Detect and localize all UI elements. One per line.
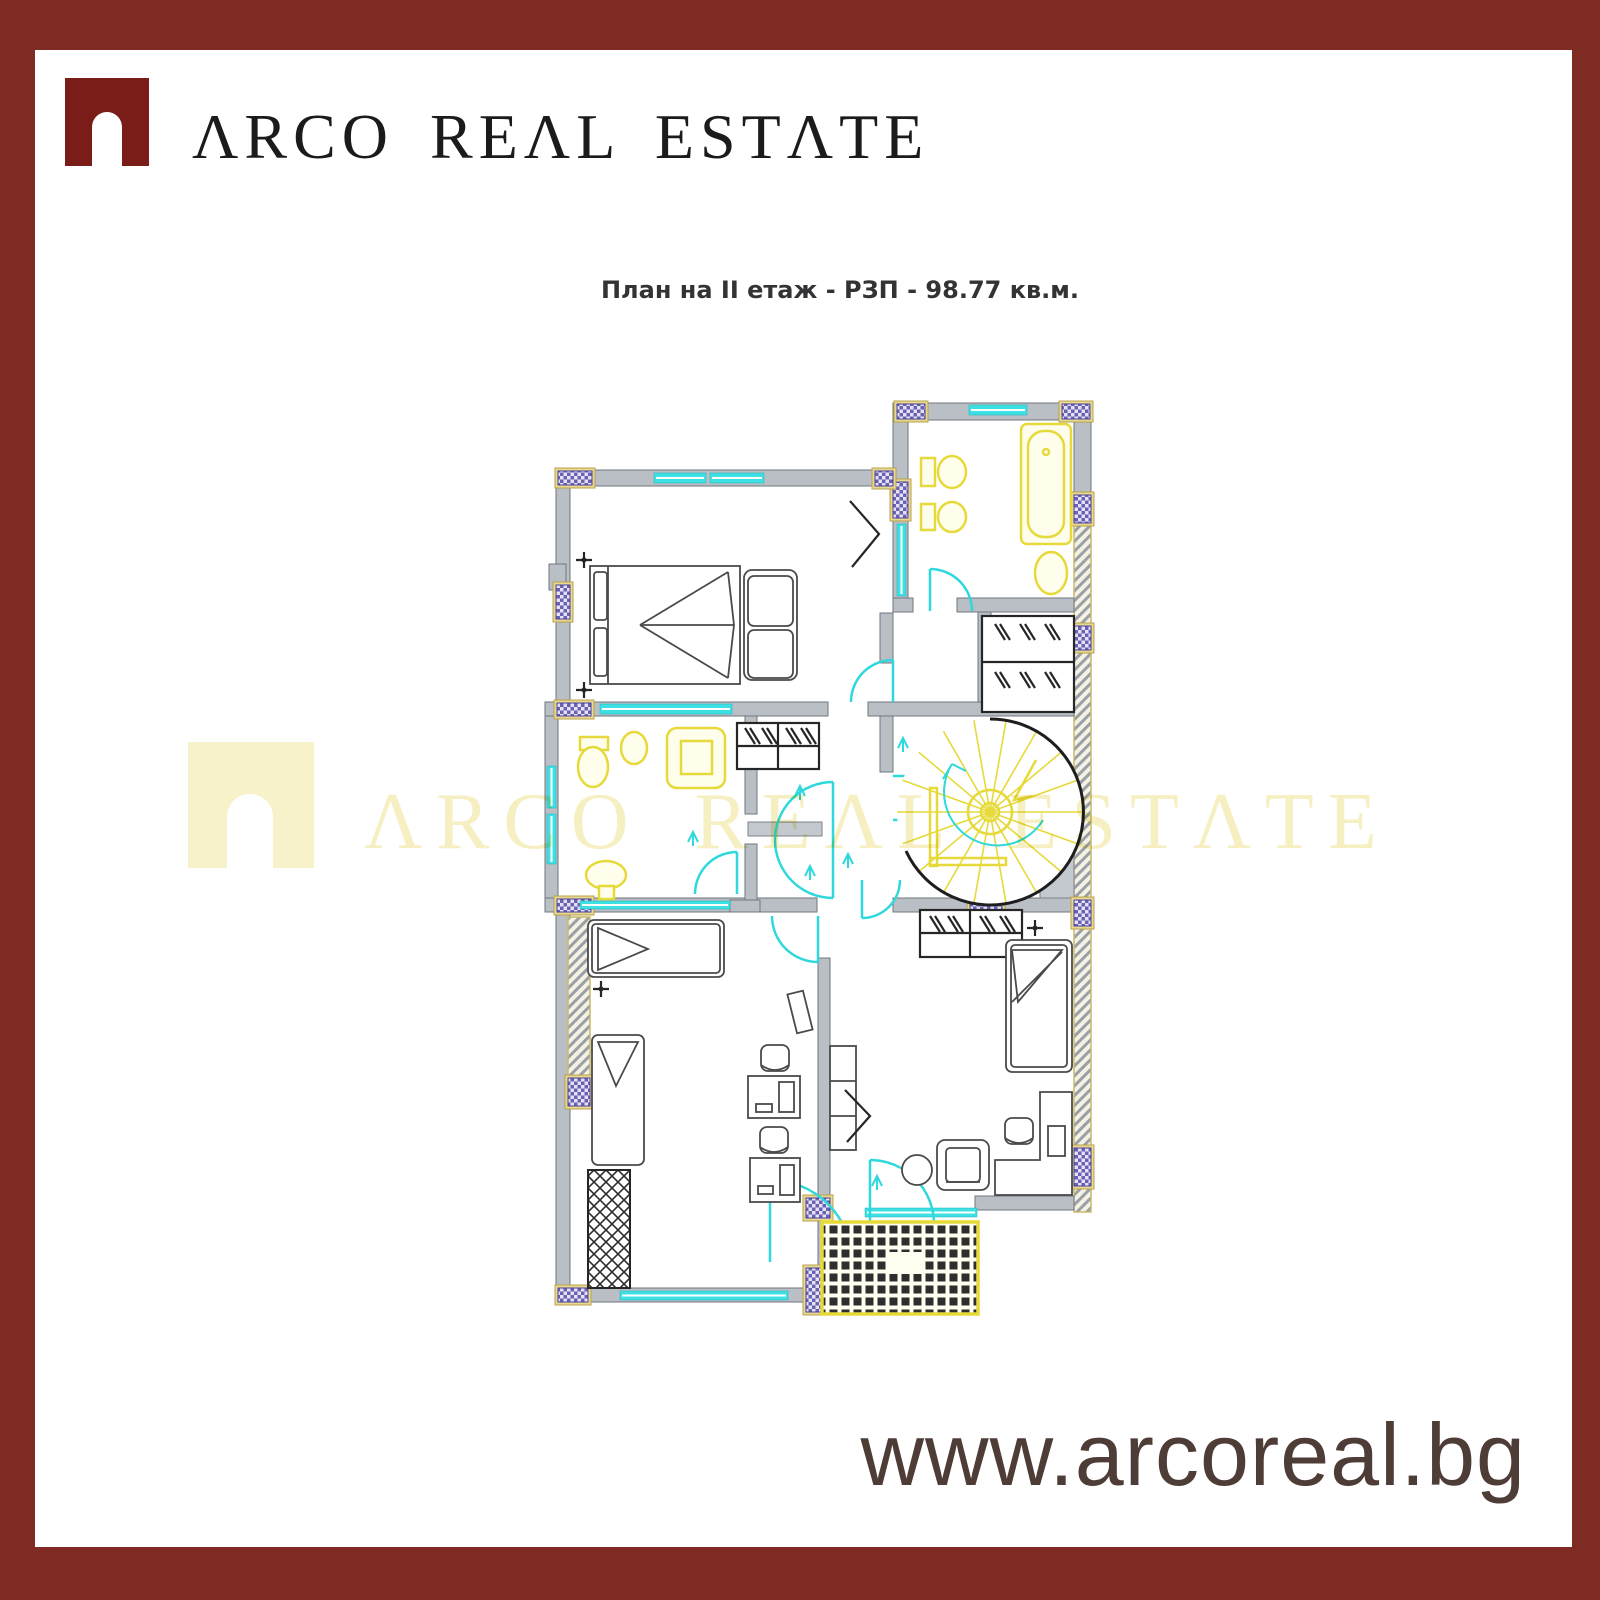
brand-wordmark: ΛRCO REΛL ESTΛTE: [192, 100, 929, 174]
arco-arch-logo-icon: [65, 78, 149, 166]
balcony: [822, 1222, 978, 1314]
watermark-arch-icon: [188, 742, 314, 868]
floor-plan: [540, 385, 1100, 1325]
floor-plan-title: План на II етаж - РЗП - 98.77 кв.м.: [540, 276, 1140, 304]
website-url: www.arcoreal.bg: [860, 1404, 1526, 1506]
spiral-staircase: [897, 719, 1083, 905]
bathroom-top-fixtures: [921, 424, 1071, 594]
bathroom-mid-fixtures: [578, 728, 725, 899]
